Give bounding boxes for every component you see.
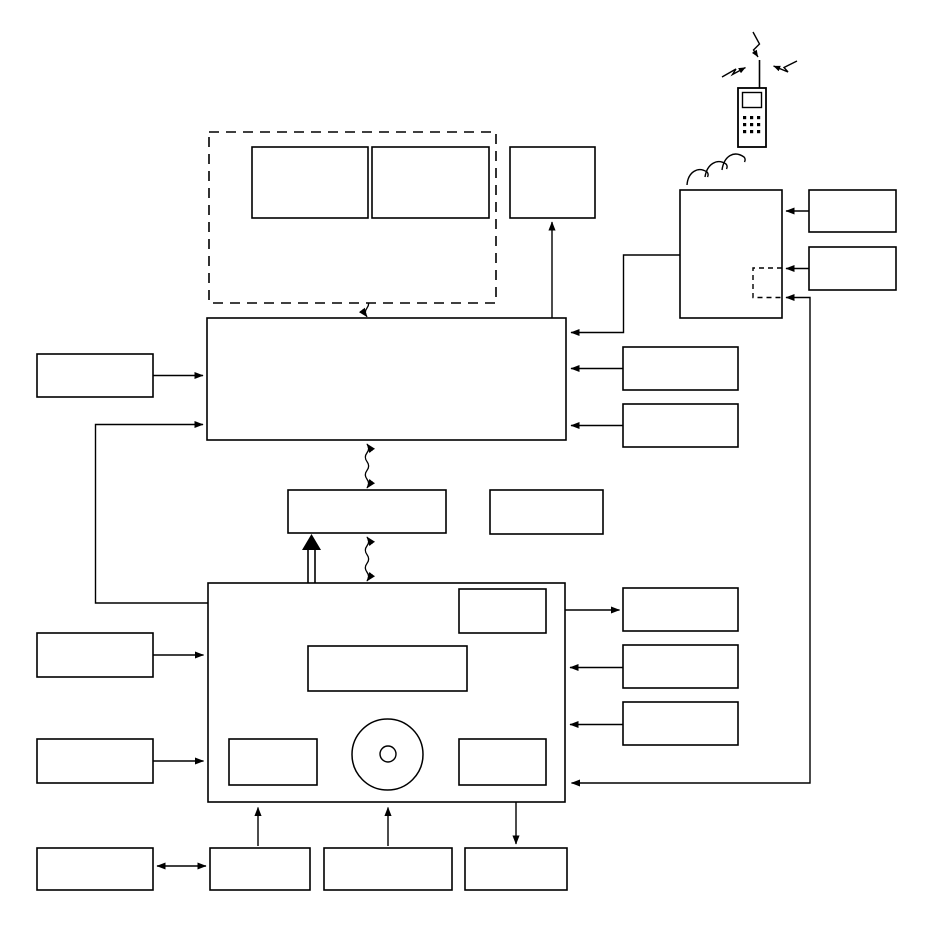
left-box-4: [37, 848, 153, 890]
top-right-output-box: [510, 147, 595, 218]
right-box-1: [623, 347, 738, 390]
lower-inner-bottom-left-box: [229, 739, 317, 785]
keypad-dot: [750, 130, 753, 133]
left-box-1: [37, 354, 153, 397]
interface-side-box: [490, 490, 603, 534]
left-box-2: [37, 633, 153, 677]
interface-block: [288, 490, 446, 533]
figure-canvas: [0, 0, 950, 927]
lower-inner-center-box: [308, 646, 467, 691]
keypad-dot: [743, 123, 746, 126]
bottom-box-2: [324, 848, 452, 890]
rf-side-box-2: [809, 247, 896, 290]
lower-inner-top-right-box: [459, 589, 546, 633]
right-box-3: [623, 588, 738, 631]
upper-main-block: [207, 318, 566, 440]
right-box-5: [623, 702, 738, 745]
patent-block-diagram: [0, 0, 950, 927]
keypad-dot: [743, 116, 746, 119]
bottom-box-3: [465, 848, 567, 890]
right-box-2: [623, 404, 738, 447]
keypad-dot: [750, 116, 753, 119]
keypad-dot: [750, 123, 753, 126]
keypad-dot: [757, 123, 760, 126]
keypad-dot: [757, 116, 760, 119]
lower-inner-bottom-right-box: [459, 739, 546, 785]
rf-side-box-1: [809, 190, 896, 232]
keypad-dot: [757, 130, 760, 133]
enclosure-box-left: [252, 147, 368, 218]
phone-keypad: [743, 116, 760, 133]
bottom-box-1: [210, 848, 310, 890]
enclosure-box-right: [372, 147, 489, 218]
left-box-3: [37, 739, 153, 783]
right-box-4: [623, 645, 738, 688]
rf-module-box: [680, 190, 782, 318]
keypad-dot: [743, 130, 746, 133]
